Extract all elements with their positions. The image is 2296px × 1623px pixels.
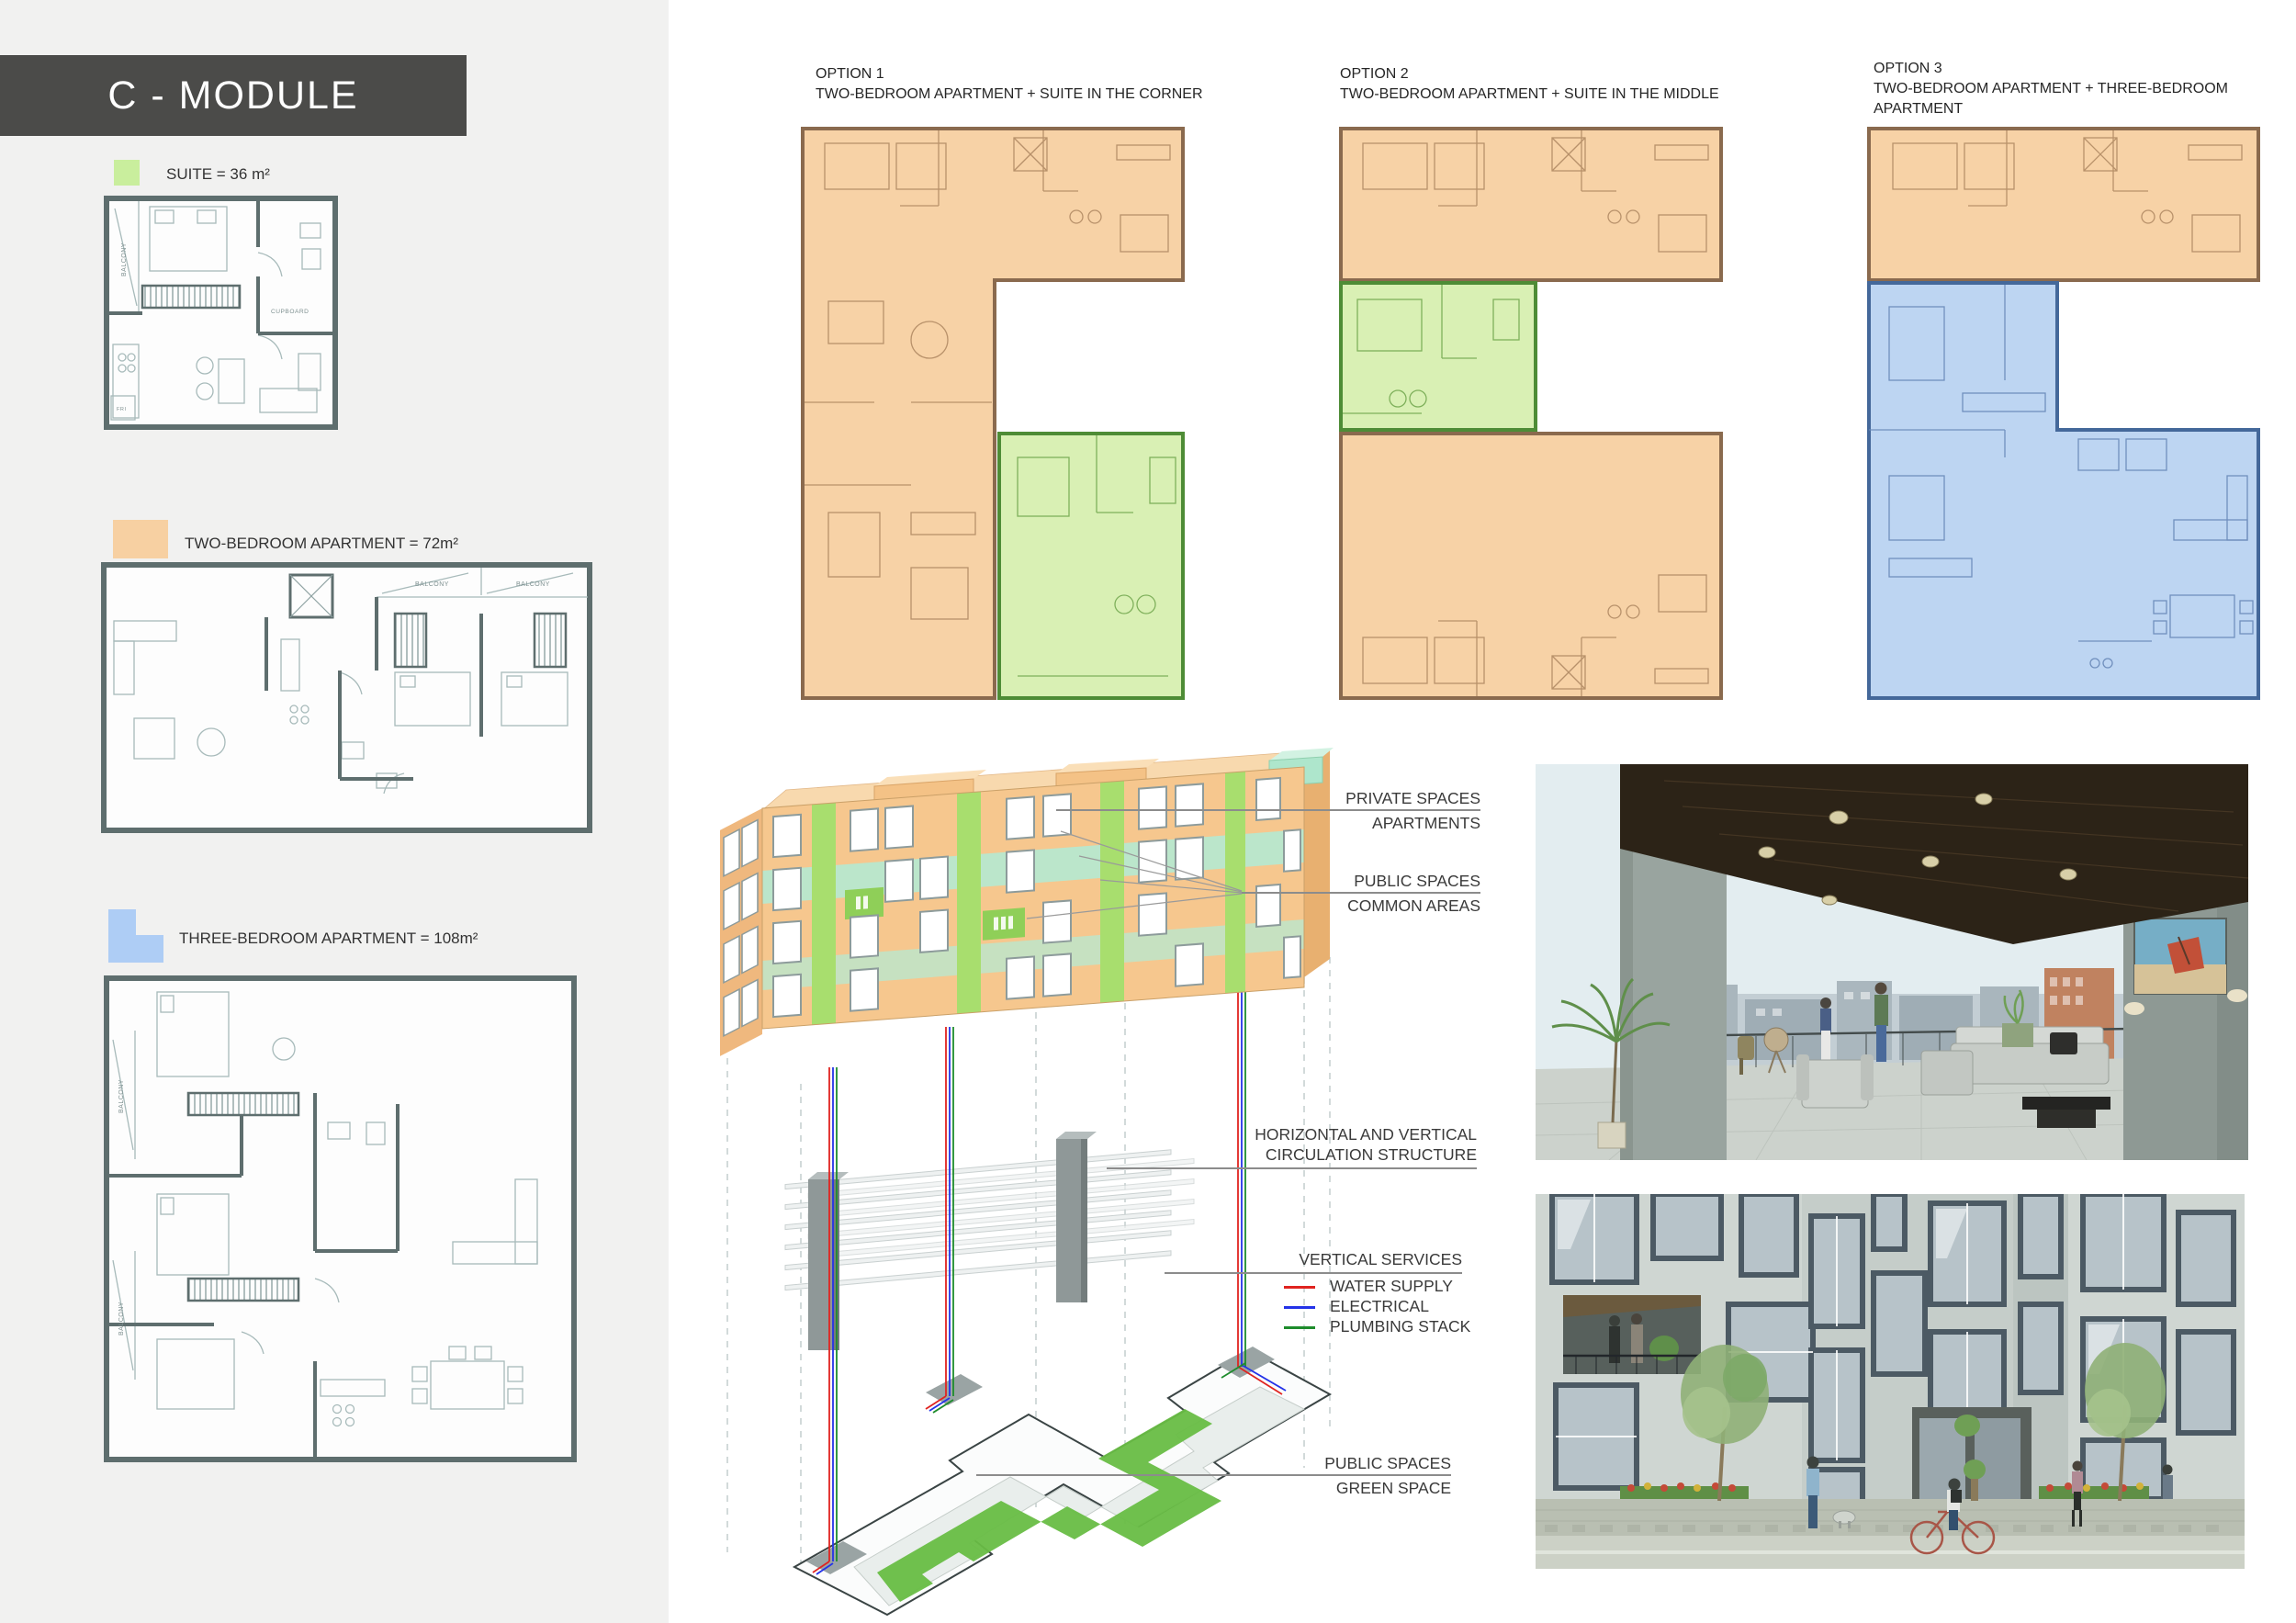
common-areas-label: COMMON AREAS <box>1347 896 1480 916</box>
private-spaces-label: PRIVATE SPACES <box>1345 788 1480 808</box>
option-1-subtitle: TWO-BEDROOM APARTMENT + SUITE IN THE COR… <box>816 85 1210 105</box>
option-2-subtitle: TWO-BEDROOM APARTMENT + SUITE IN THE MID… <box>1340 85 1735 105</box>
apartments-label: APARTMENTS <box>1372 813 1480 833</box>
option-3-name: OPTION 3 <box>1874 59 2230 79</box>
option-2-header: OPTION 2 TWO-BEDROOM APARTMENT + SUITE I… <box>1340 64 1735 105</box>
three-bedroom-color-swatch <box>108 909 136 937</box>
option-2-plan <box>1339 127 1723 702</box>
module-title-bar: C - MODULE <box>0 55 467 136</box>
public-spaces-common-label: PUBLIC SPACES <box>1354 871 1480 891</box>
option-3-header: OPTION 3 TWO-BEDROOM APARTMENT + THREE-B… <box>1874 59 2230 119</box>
option-1-name: OPTION 1 <box>816 64 1210 85</box>
private-spaces-line1: PRIVATE SPACES <box>1345 788 1480 808</box>
circulation-slab-stack <box>785 1132 1194 1350</box>
plumbing-stack-line-sample <box>1284 1326 1315 1329</box>
presentation-board: C - MODULE SUITE = 36 m² <box>0 0 2296 1623</box>
circulation-line2: CIRCULATION STRUCTURE <box>1266 1144 1477 1165</box>
suite-fridge-label: FRI <box>117 407 127 412</box>
render-common-area-photo <box>1536 764 2248 1160</box>
two-bedroom-legend-label: TWO-BEDROOM APARTMENT = 72m² <box>185 535 458 553</box>
suite-balcony-label: BALCONY <box>121 242 128 276</box>
circulation-line1: HORIZONTAL AND VERTICAL <box>1255 1124 1477 1144</box>
electrical-line-sample <box>1284 1306 1315 1309</box>
suite-cupboard-label: CUPBOARD <box>271 309 309 315</box>
option-3-plan <box>1867 127 2262 702</box>
ground-plane <box>794 1347 1330 1615</box>
option-2-name: OPTION 2 <box>1340 64 1735 85</box>
water-supply-line-sample <box>1284 1286 1315 1289</box>
three-bedroom-floor-plan: BALCONY BALCONY <box>104 975 577 1462</box>
three-bedroom-balcony-lower-label: BALCONY <box>118 1302 125 1336</box>
three-bedroom-legend-label: THREE-BEDROOM APARTMENT = 108m² <box>179 930 478 948</box>
option-1-header: OPTION 1 TWO-BEDROOM APARTMENT + SUITE I… <box>816 64 1210 105</box>
street-level <box>1536 1499 2245 1569</box>
plumbing-stack-label: PLUMBING STACK <box>1330 1317 1470 1336</box>
two-bedroom-floor-plan: BALCONY BALCONY <box>101 562 592 833</box>
render-street-facade-photo <box>1536 1194 2245 1569</box>
vertical-services-title: VERTICAL SERVICES <box>1299 1249 1462 1269</box>
water-supply-label: WATER SUPPLY <box>1330 1277 1453 1296</box>
three-bedroom-balcony-upper-label: BALCONY <box>118 1079 125 1113</box>
three-bedroom-color-swatch-2 <box>108 935 163 963</box>
two-bedroom-color-swatch <box>113 520 168 558</box>
suite-color-swatch <box>114 160 140 186</box>
public-spaces-green-label: PUBLIC SPACES <box>1324 1453 1451 1473</box>
option-3-subtitle: TWO-BEDROOM APARTMENT + THREE-BEDROOM AP… <box>1874 79 2230 119</box>
green-space-label: GREEN SPACE <box>1336 1478 1451 1498</box>
two-bedroom-balcony-right-label: BALCONY <box>516 581 550 588</box>
suite-legend-label: SUITE = 36 m² <box>166 165 270 184</box>
two-bedroom-balcony-left-label: BALCONY <box>415 581 449 588</box>
electrical-label: ELECTRICAL <box>1330 1297 1429 1316</box>
option-1-plan <box>801 127 1185 702</box>
suite-floor-plan: BALCONY CUPBOARD FRI <box>104 196 338 430</box>
page-title: C - MODULE <box>107 73 358 118</box>
